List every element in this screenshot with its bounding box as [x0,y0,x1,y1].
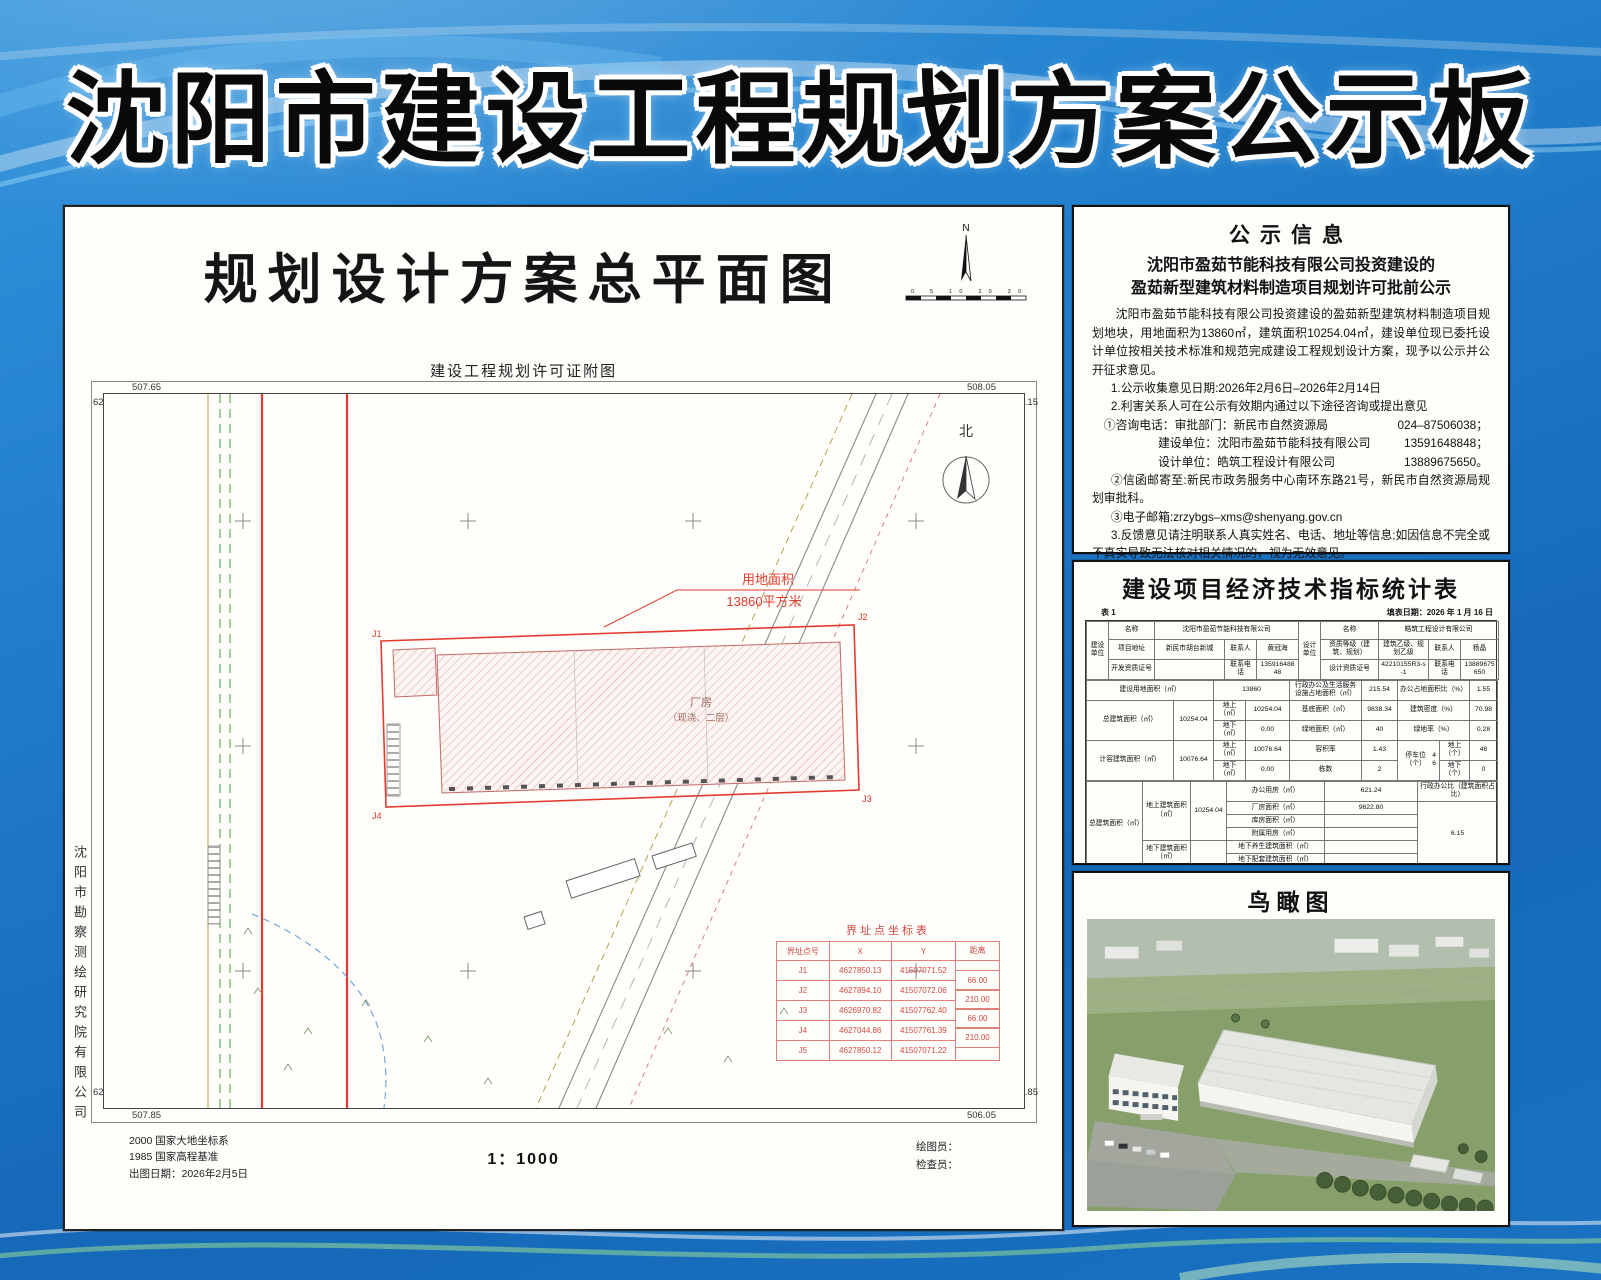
coord-row: J14627850.1341507071.52 [777,961,956,981]
north-compass-icon: 北 [943,423,989,503]
contact-label: 设计单位：皓筑工程设计有限公司 [1092,453,1335,471]
coord-header: Y [891,942,955,961]
corner-coordinate: 506.05 [967,1110,996,1121]
notice-board: 沈阳市建设工程规划方案公示板 规划设计方案总平面图 建设工程规划许可证附图 N … [0,0,1601,1280]
svg-text:0 5 10 20 30: 0 5 10 20 30 [911,289,1021,295]
notice-item: 3.反馈意见请注明联系人真实姓名、电话、地址等信息;如因信息不完全或不真实导致无… [1092,526,1490,563]
notice-item: 建设单位：沈阳市盈茹节能科技有限公司 13591648848； [1092,434,1490,452]
notice-subtitle-1: 沈阳市盈茹节能科技有限公司投资建设的 [1092,254,1490,277]
checker-label: 检查员： [916,1157,958,1175]
plan-panel: 规划设计方案总平面图 建设工程规划许可证附图 N 0 5 10 20 30 50… [63,205,1064,1231]
north-arrow-icon: N [953,221,979,287]
plan-title: 规划设计方案总平面图 [65,235,982,314]
building-label: 厂房 [690,696,712,709]
notice-item-email: ③电子邮箱:zrzybgs–xms@shenyang.gov.cn [1092,508,1490,526]
svg-text:J3: J3 [862,794,872,804]
notice-panel: 公示信息 沈阳市盈茹节能科技有限公司投资建设的 盈茹新型建筑材料制造项目规划许可… [1072,205,1510,554]
surveyor-vertical-name: 沈阳市勘察测绘研究院有限公司 [70,845,89,1125]
table-number: 表 1 [1101,607,1116,618]
corner-coordinate: 507.65 [132,382,161,393]
phone-number: 13889675650。 [1404,453,1490,471]
notice-subtitle-2: 盈茹新型建筑材料制造项目规划许可批前公示 [1092,277,1490,300]
board-title: 沈阳市建设工程规划方案公示板 [0,38,1601,183]
svg-text:北: 北 [959,423,973,439]
indicator-panel: 建设项目经济技术指标统计表 表 1 填表日期：2026 年 1 月 16 日 建… [1072,560,1510,865]
staff-signatures: 绘图员： 检查员： [916,1139,958,1175]
area-callout-value: 13860平方米 [726,594,801,609]
coord-row: J24627894.1041507072.06 [777,981,956,1001]
notice-item: 设计单位：皓筑工程设计有限公司 13889675650。 [1092,453,1490,471]
area-callout-label: 用地面积 [742,572,794,587]
site-plan-map: J1 J2 J3 J4 [103,393,1025,1109]
coord-table-title: 界址点坐标表 [776,922,1000,938]
distance-cell: 210.00 [955,1027,1000,1048]
aerial-panel: 鸟瞰图 [1072,871,1510,1227]
coord-row: J44627044.8641507761.39 [777,1021,956,1041]
notice-item: ②信函邮寄至:新民市政务服务中心南环东路21号，新民市自然资源局规划审批科。 [1092,471,1490,508]
distance-cell: 210.00 [955,989,1000,1010]
indicator-title: 建设项目经济技术指标统计表 [1085,570,1497,604]
drawing-sheet-frame: 507.65 627.15 508.05 627.15 626.85 507.8… [91,381,1037,1123]
coord-row: J34626970.8241507762.40 [777,1001,956,1021]
building-label-sub: （现浇、二层） [668,712,735,724]
building-footprint [437,642,845,793]
existing-building [524,911,545,929]
svg-text:N: N [962,223,969,234]
map-scale: 1：1000 [65,1145,982,1169]
permit-caption: 建设工程规划许可证附图 [65,360,982,381]
distance-column: 距离 66.00 210.00 66.00 210.00 [955,941,1000,1061]
contact-label: 建设单位：沈阳市盈茹节能科技有限公司 [1092,434,1370,452]
green-boundary-line [220,394,230,1108]
coord-row: J54627850.1241507071.22 [777,1041,956,1061]
distance-cell: 66.00 [955,970,1000,991]
notice-item: 2.利害关系人可在公示有效期内通过以下途径咨询或提出意见 [1092,397,1490,415]
fill-date: 填表日期：2026 年 1 月 16 日 [1387,607,1493,618]
existing-building [652,843,696,869]
notice-item: 1.公示收集意见日期:2026年2月6日–2026年2月14日 [1092,379,1490,397]
aerial-title: 鸟瞰图 [1074,883,1508,917]
north-arrow-and-scale: N 0 5 10 20 30 [896,221,1036,305]
annex-footprint [393,648,437,697]
scale-bar: 0 5 10 20 30 [900,287,1032,305]
corner-coordinate: 507.85 [132,1110,161,1121]
drafter-label: 绘图员： [916,1139,958,1157]
coord-header: X [829,942,891,961]
boundary-coord-table: 界址点坐标表 界址点号 X Y J14627850.1341507071.52 … [776,922,1000,1061]
svg-text:J1: J1 [372,629,382,639]
phone-number: 024–87506038； [1397,416,1490,434]
notice-item: ①咨询电话：审批部门：新民市自然资源局 024–87506038； [1092,416,1490,434]
corner-coordinate: 508.05 [967,382,996,393]
aerial-rendering [1087,919,1495,1211]
existing-building [566,859,640,898]
blue-dashed-line [252,914,386,1108]
svg-text:J2: J2 [858,612,868,622]
svg-text:J4: J4 [372,811,382,821]
distance-cell: 66.00 [955,1008,1000,1029]
notice-paragraph: 沈阳市盈茹节能科技有限公司投资建设的盈茹新型建筑材料制造项目规划地块，用地面积为… [1092,305,1490,379]
grass-marks [244,928,788,1084]
contact-label: ①咨询电话：审批部门：新民市自然资源局 [1092,416,1328,434]
notice-title: 公示信息 [1092,219,1490,249]
phone-number: 13591648848； [1404,434,1490,452]
indicator-table: 建设单位 名称沈阳市盈茹节能科技有限公司 设计单位 名称皓筑工程设计有限公司 项… [1085,620,1497,865]
coord-header: 界址点号 [777,942,830,961]
